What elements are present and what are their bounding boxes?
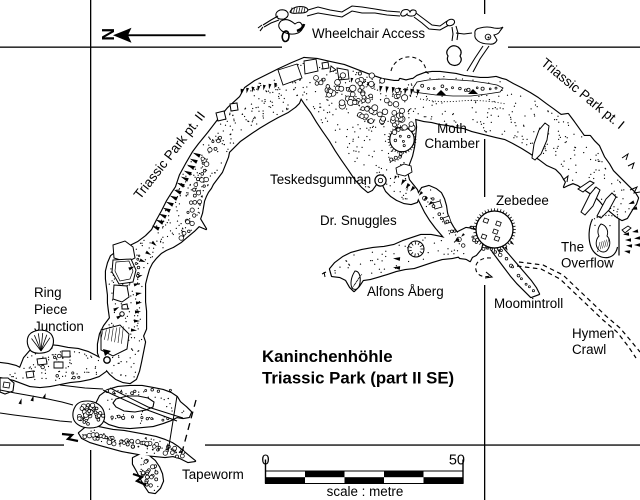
svg-text:N: N <box>98 28 118 41</box>
svg-text:Moomintroll: Moomintroll <box>494 296 563 311</box>
svg-text:Moth: Moth <box>437 121 467 136</box>
svg-text:Tapeworm: Tapeworm <box>182 467 244 482</box>
svg-text:Overflow: Overflow <box>561 256 614 271</box>
svg-text:Junction: Junction <box>34 319 84 334</box>
svg-text:scale : metre: scale : metre <box>327 484 404 499</box>
svg-text:Alfons Åberg: Alfons Åberg <box>367 284 444 299</box>
svg-text:Dr. Snuggles: Dr. Snuggles <box>320 213 397 228</box>
svg-text:Wheelchair Access: Wheelchair Access <box>312 26 425 41</box>
svg-text:The: The <box>561 240 584 255</box>
svg-text:Triassic Park (part II SE): Triassic Park (part II SE) <box>262 369 454 388</box>
svg-text:Zebedee: Zebedee <box>496 193 549 208</box>
svg-text:50: 50 <box>449 453 465 469</box>
svg-text:Piece: Piece <box>34 302 68 317</box>
svg-text:Kaninchenhöhle: Kaninchenhöhle <box>262 347 393 366</box>
svg-text:0: 0 <box>262 453 270 469</box>
svg-text:Teskedsgumman: Teskedsgumman <box>270 172 371 187</box>
svg-text:Chamber: Chamber <box>424 136 480 151</box>
svg-text:Ring: Ring <box>34 285 62 300</box>
svg-text:Crawl: Crawl <box>572 342 606 357</box>
svg-text:Hymen: Hymen <box>572 326 614 341</box>
